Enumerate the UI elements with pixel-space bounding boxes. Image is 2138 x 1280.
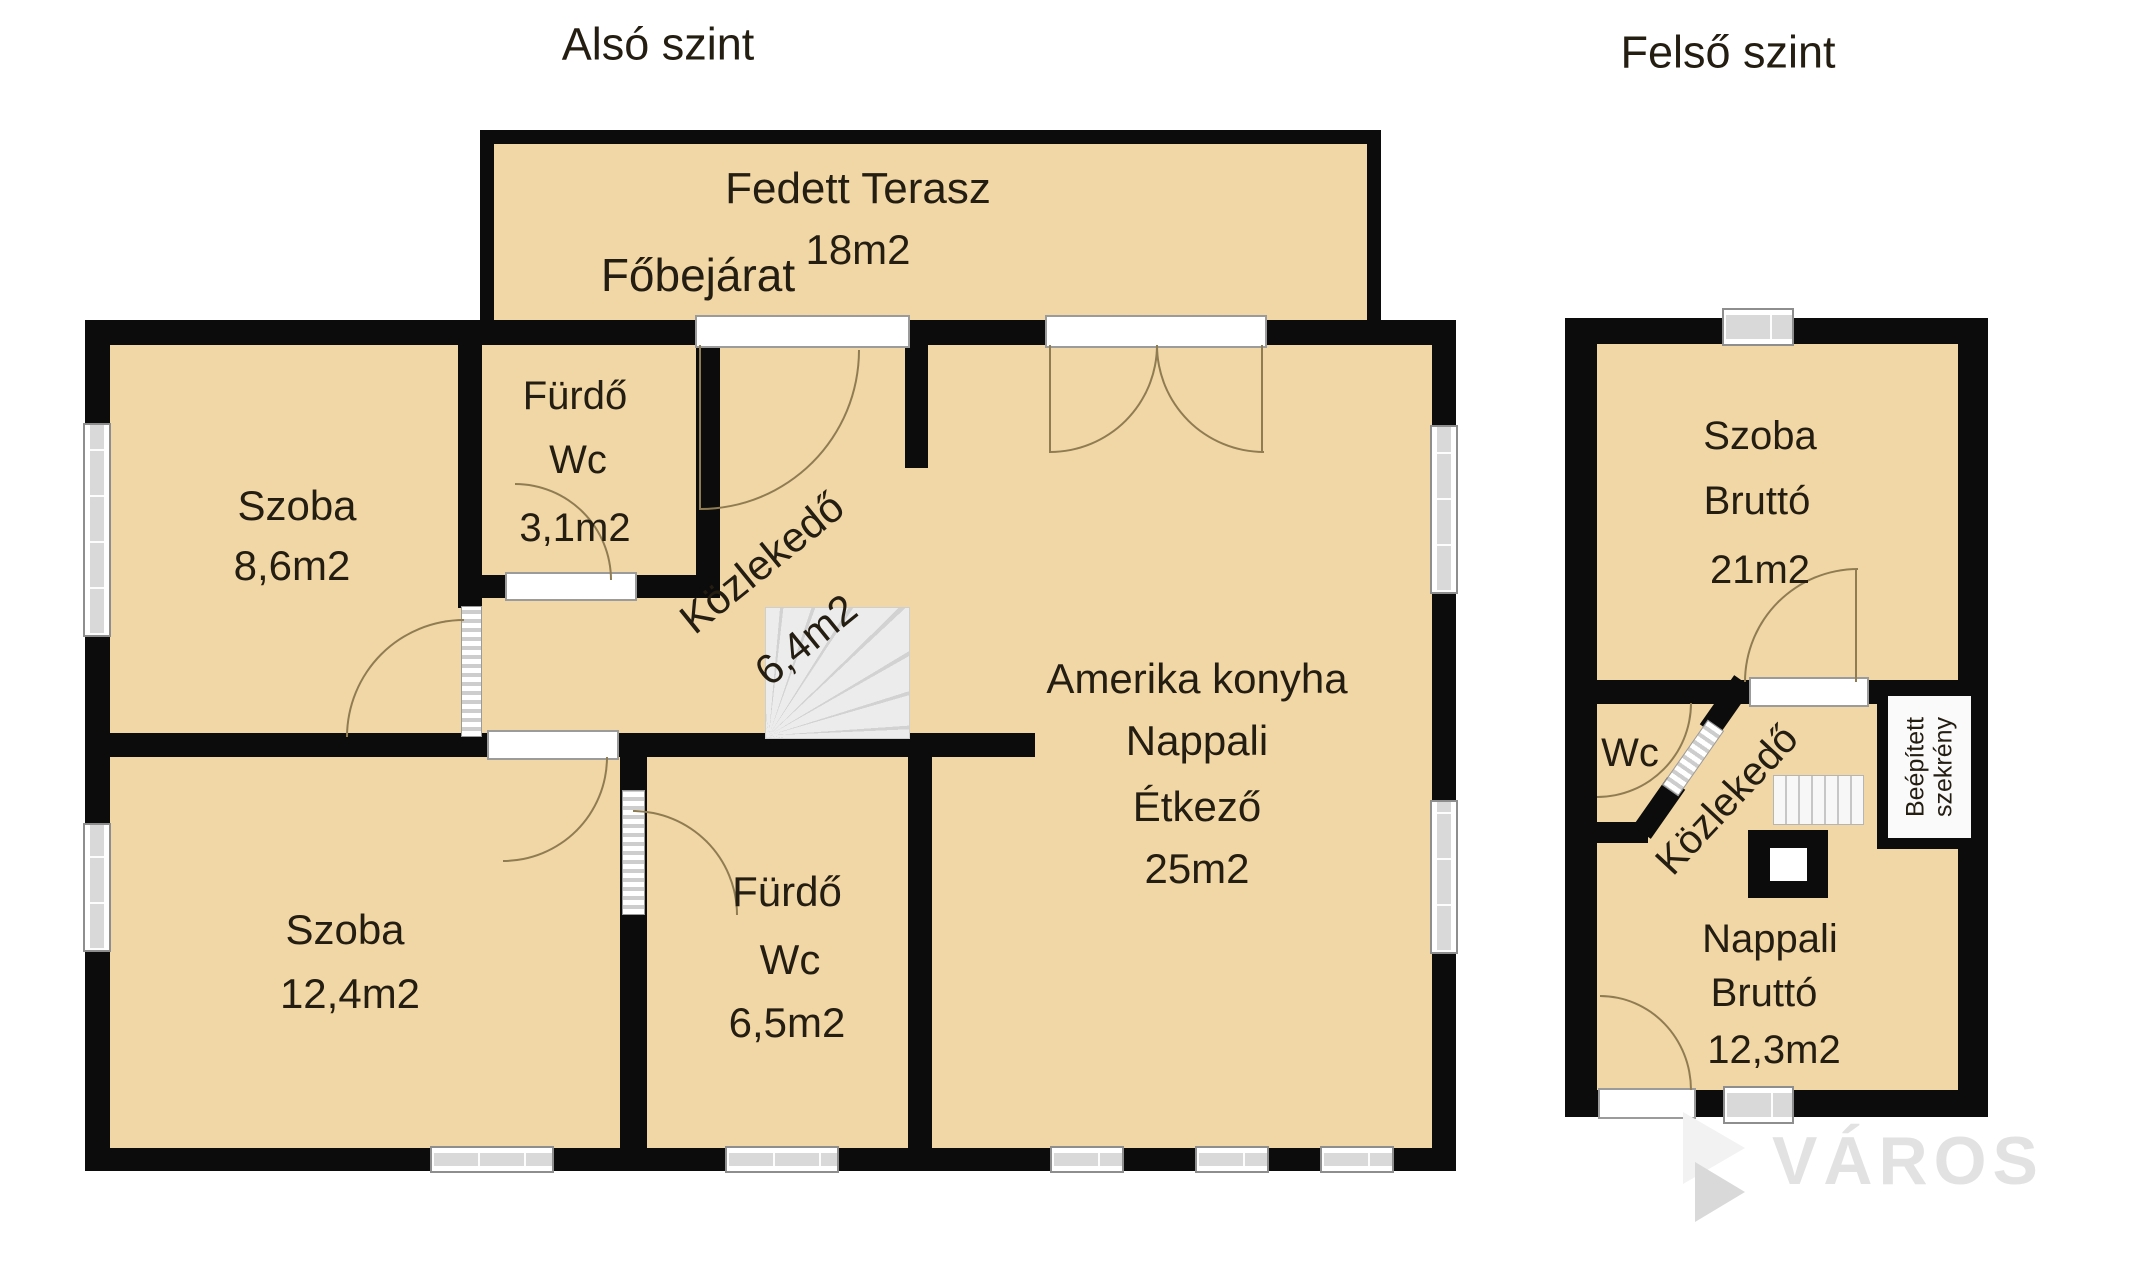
closet-label-line2: szekrény xyxy=(1930,717,1958,817)
szoba2-label: Szoba xyxy=(285,909,404,951)
upper-szoba-door-leaf xyxy=(1855,570,1857,682)
upper-wall-bottom-a xyxy=(1565,1090,1600,1117)
upper-szoba-area-label: 21m2 xyxy=(1710,550,1810,590)
upper-bottom-door-frame xyxy=(1598,1088,1696,1119)
upper-nappali-area-label: 12,3m2 xyxy=(1707,1030,1840,1070)
szoba1-label: Szoba xyxy=(237,485,356,527)
main-entrance-label: Főbejárat xyxy=(601,252,795,298)
closet-label: Beépített szekrény xyxy=(1902,717,1957,817)
wall-furdo1-bottom-a xyxy=(458,575,508,598)
window-bottom-1 xyxy=(430,1146,554,1173)
window-right-a xyxy=(1430,425,1458,594)
entrance-door-leaf xyxy=(699,345,701,510)
window-bottom-3 xyxy=(1050,1146,1124,1173)
wall-entry-stub xyxy=(905,345,928,468)
double-door-leaf-left xyxy=(1049,345,1051,453)
wall-furdo2-amerika xyxy=(908,757,932,1148)
etkezo-label: Étkező xyxy=(1133,786,1261,828)
furdo1-area-label: 3,1m2 xyxy=(519,508,630,548)
upper-wall-left xyxy=(1565,318,1597,1117)
window-left-szoba1 xyxy=(83,423,111,637)
closet-label-line1: Beépített xyxy=(1902,717,1930,817)
upper-nappali-brutto-label: Bruttó xyxy=(1711,973,1818,1013)
terrace-wall-left xyxy=(480,130,494,320)
window-upper-top xyxy=(1722,308,1794,346)
chimney-flue xyxy=(1770,848,1807,881)
window-bottom-4 xyxy=(1195,1146,1269,1173)
szoba1-door-leaf xyxy=(461,606,482,737)
title-upper-level: Felső szint xyxy=(1620,30,1835,75)
upper-wc-label: Wc xyxy=(1601,733,1659,773)
upper-wall-bottom-c xyxy=(1790,1090,1988,1117)
double-door-leaf-right xyxy=(1261,345,1263,453)
wall-szoba1-furdo1 xyxy=(458,345,482,608)
window-bottom-5 xyxy=(1320,1146,1394,1173)
terrace-area-label: 18m2 xyxy=(805,229,910,271)
watermark-text: VÁROS xyxy=(1772,1122,2044,1200)
amerika-konyha-label: Amerika konyha xyxy=(1046,658,1347,700)
wall-top-a xyxy=(85,320,700,345)
window-right-b xyxy=(1430,800,1458,954)
szoba2-door-frame xyxy=(487,730,619,760)
terrace-wall-right xyxy=(1367,130,1381,320)
double-door-frame xyxy=(1045,315,1267,348)
furdo1-wc-label: Wc xyxy=(549,440,607,480)
upper-szoba-label: Szoba xyxy=(1703,416,1816,456)
upper-nappali-label: Nappali xyxy=(1702,919,1838,959)
furdo2-area-label: 6,5m2 xyxy=(729,1002,846,1044)
terrace-label: Fedett Terasz xyxy=(725,167,991,211)
szoba2-area-label: 12,4m2 xyxy=(280,973,420,1015)
nappali-label: Nappali xyxy=(1126,720,1268,762)
window-left-szoba2 xyxy=(83,823,111,952)
furdo2-label: Fürdő xyxy=(732,871,842,913)
watermark-logo-shadow xyxy=(1695,1162,1745,1222)
terrace-wall-top xyxy=(480,130,1381,144)
built-in-closet: Beépített szekrény xyxy=(1877,685,1982,849)
title-lower-level: Alsó szint xyxy=(562,22,755,67)
furdo1-label: Fürdő xyxy=(523,376,628,416)
wall-top-c xyxy=(1262,320,1456,345)
szoba1-area-label: 8,6m2 xyxy=(234,545,351,587)
floor-plan-canvas: Beépített szekrény Alsó szint Felső szin… xyxy=(0,0,2138,1280)
wall-top-b xyxy=(905,320,1050,345)
furdo2-wc-label: Wc xyxy=(760,939,821,981)
upper-szoba-brutto-label: Bruttó xyxy=(1704,481,1811,521)
window-bottom-2 xyxy=(725,1146,839,1173)
amerika-area-label: 25m2 xyxy=(1144,848,1249,890)
staircase-upper xyxy=(1773,775,1864,825)
main-entrance-frame xyxy=(695,315,910,348)
